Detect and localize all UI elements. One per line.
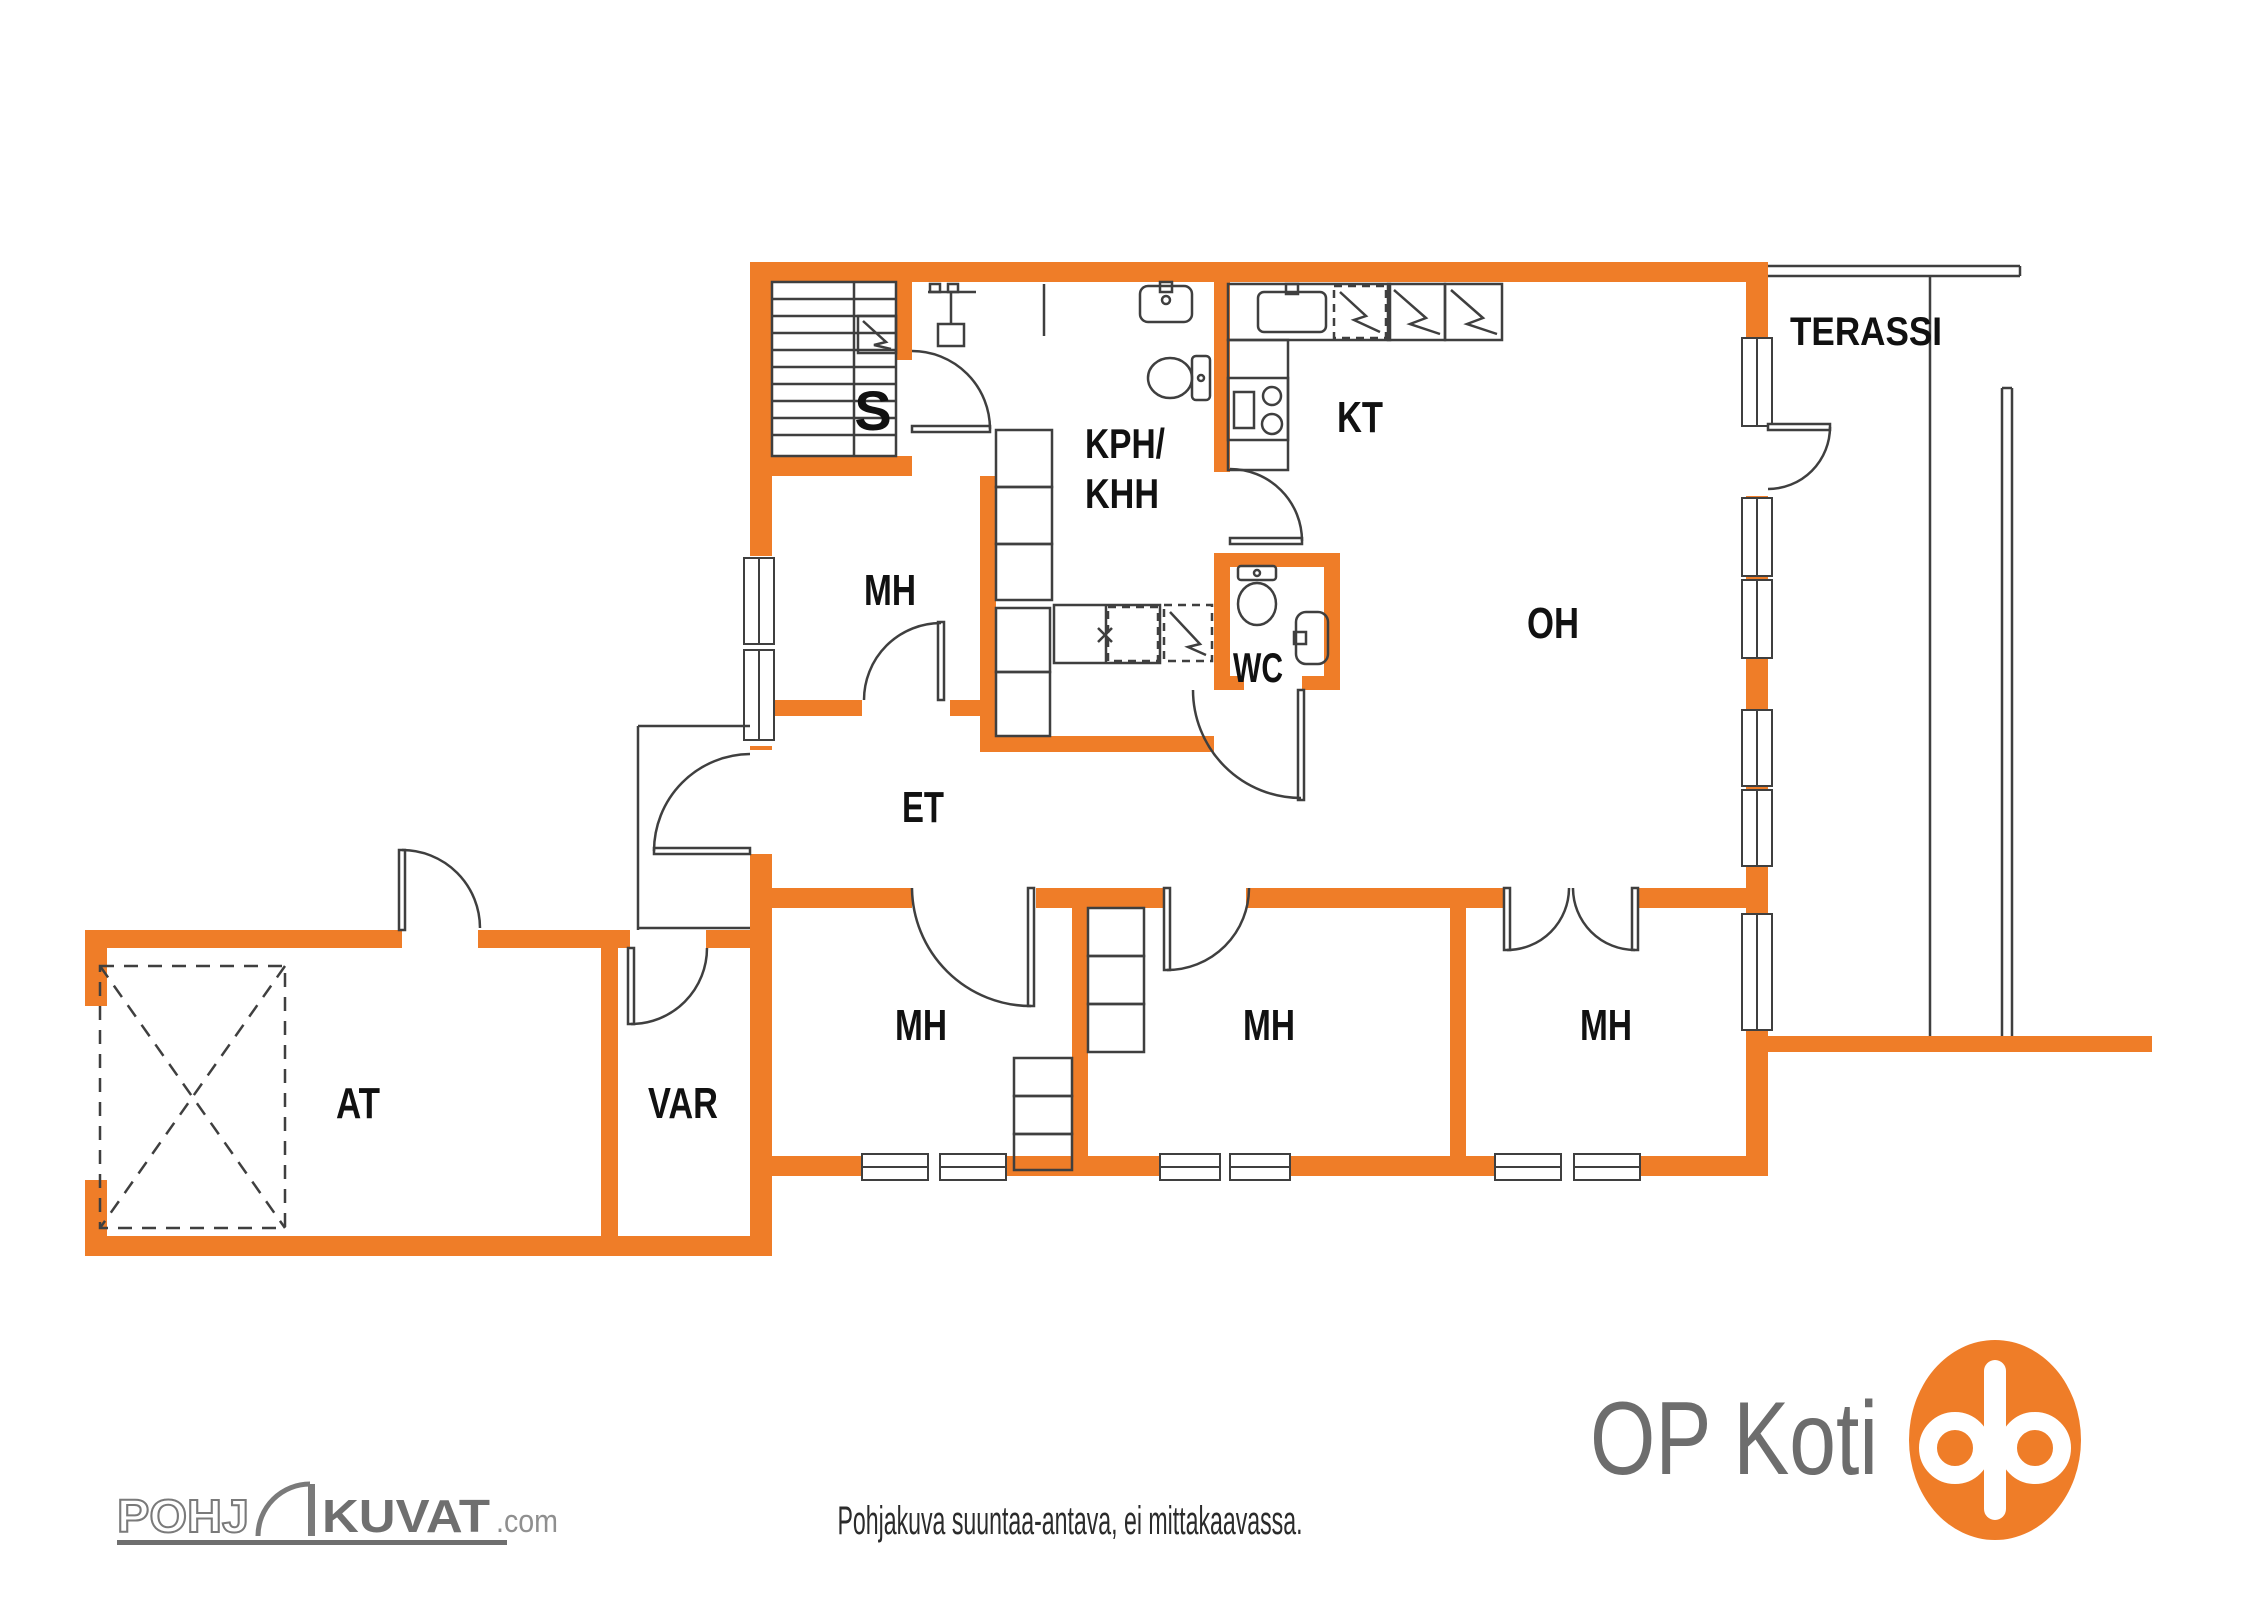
floor-plan-canvas: S KPH/ KHH KT OH WC MH ET MH MH MH AT VA… [0,0,2262,1600]
room-labels: S KPH/ KHH KT OH WC MH ET MH MH MH AT VA… [336,310,1942,1128]
room-label-entry: ET [902,783,944,832]
door-leaf [1768,424,1830,430]
disclaimer-text: Pohjakuva suuntaa-antava, ei mittakaavas… [838,1499,1303,1543]
pohjakuvat-logo: POHJ KUVAT .com [117,1484,558,1545]
bathroom-sink-icon [1140,282,1192,322]
wc-sink-icon [1294,612,1328,664]
op-koti-text: OP Koti [1590,1381,1878,1497]
room-label-sauna: S [854,379,891,442]
op-logo-icon [1909,1340,2081,1540]
room-label-terrace: TERASSI [1790,310,1942,354]
room-label-bathroom-2: KHH [1085,470,1159,517]
shower-icon [928,284,976,346]
door-leaf [654,848,750,854]
walls [85,262,2152,1256]
room-label-garage: AT [336,1079,380,1128]
door-leaf [938,622,944,700]
watermark-outline-text: POHJ [117,1490,249,1542]
car-space [100,966,285,1228]
room-label-wc: WC [1233,644,1283,691]
stove-icon [1228,378,1288,440]
dishwasher-icon [1334,286,1386,338]
bathroom-toilet-icon [1148,356,1210,400]
room-label-bedroom-s2: MH [1243,1001,1295,1050]
kitchen-sink-icon [1258,292,1326,332]
door-leaf [1164,888,1170,970]
floor-plan: S KPH/ KHH KT OH WC MH ET MH MH MH AT VA… [0,0,2262,1600]
door-leaf [1298,690,1304,800]
laundry-counter [1054,605,1160,663]
door-leaf [1028,888,1034,1006]
watermark-suffix-text: .com [496,1503,558,1539]
sauna-heater-icon [858,316,896,353]
appliance-icon [1164,605,1212,661]
door-swing-icon [258,1484,315,1536]
door-leaf [1504,888,1510,950]
watermark-underline [117,1540,507,1545]
fridge-icon [1388,284,1445,340]
room-label-bedroom-s1: MH [895,1001,947,1050]
door-leaf [399,850,405,930]
door-leaf [628,948,634,1024]
room-label-bedroom-s3: MH [1580,1001,1632,1050]
room-label-living-room: OH [1527,599,1579,648]
op-koti-brand: OP Koti [1590,1340,2081,1540]
wc-toilet-icon [1238,566,1276,625]
freezer-icon [1445,284,1502,340]
door-leaf [912,426,990,432]
closet-bathroom [996,430,1052,736]
room-label-bathroom-1: KPH/ [1085,420,1165,467]
watermark-main-text: KUVAT [322,1490,490,1542]
footer: POHJ KUVAT .com Pohjakuva suuntaa-antava… [117,1340,2081,1545]
door-leaf [1230,538,1302,544]
room-label-storage: VAR [648,1079,718,1128]
door-leaf [1632,888,1638,950]
washer-icon [1108,607,1158,661]
room-label-kitchen: KT [1337,393,1383,442]
terrace-structure [1768,266,2020,1036]
room-label-bedroom-nw: MH [864,566,916,615]
